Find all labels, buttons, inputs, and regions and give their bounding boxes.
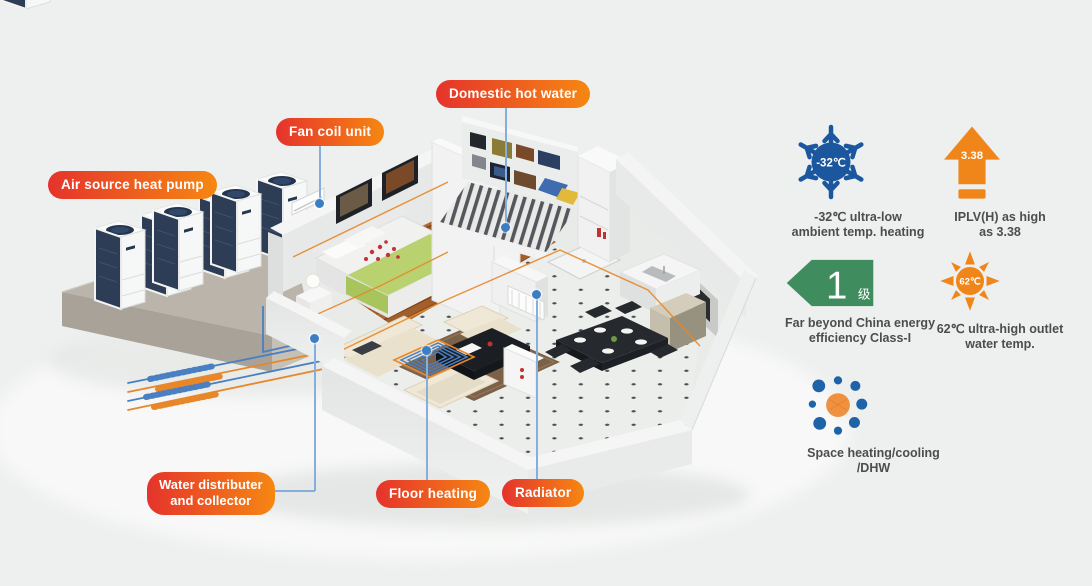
label-water-distributer-line1: Water distributer <box>159 477 263 492</box>
energy-class-number: 1 <box>826 264 847 307</box>
feature-caption: -32℃ ultra-low ambient temp. heating <box>788 210 928 240</box>
heating-cooling-dhw-icon <box>796 374 880 438</box>
leader-dot-fan-coil <box>315 199 324 208</box>
leader-dot-floor-heating <box>422 346 431 355</box>
label-air-source-heat-pump: Air source heat pump <box>48 171 217 199</box>
scene-canvas: Air source heat pump Fan coil unit Domes… <box>0 0 1092 586</box>
leader-dot-dhw <box>501 223 510 232</box>
feature-energy-class: 1 级 Far beyond China energy efficiency C… <box>781 258 939 346</box>
leader-line-fan-coil <box>319 146 321 203</box>
feature-iplv: 3.38 IPLV(H) as high as 3.38 <box>930 124 1070 240</box>
snowflake-badge: -32℃ <box>816 157 846 170</box>
energy-class-unit: 级 <box>858 287 871 301</box>
label-floor-heating: Floor heating <box>376 480 490 508</box>
feature-ultra-low-temp: -32℃ -32℃ ultra-low ambient temp. heatin… <box>788 122 928 240</box>
energy-label-icon: 1 级 <box>781 258 879 308</box>
label-water-distributer: Water distributer and collector <box>147 472 275 515</box>
leader-line-water-h <box>268 490 315 492</box>
sun-badge: 62℃ <box>959 277 980 288</box>
snowflake-icon: -32℃ <box>788 122 874 202</box>
heat-pump-unit <box>0 0 50 9</box>
leader-line-water-v <box>314 338 316 491</box>
leader-line-dhw <box>505 107 507 227</box>
leader-dot-radiator <box>532 290 541 299</box>
heat-pump-units <box>0 0 307 309</box>
feature-caption: Space heating/cooling /DHW <box>796 446 951 476</box>
feature-outlet-temp: 62℃ 62℃ ultra-high outlet water temp. <box>930 248 1070 352</box>
leader-line-floor-heating <box>426 350 428 480</box>
leader-dot-water <box>310 334 319 343</box>
feature-modes: Space heating/cooling /DHW <box>796 374 951 476</box>
label-fan-coil-unit: Fan coil unit <box>276 118 384 146</box>
sun-icon: 62℃ <box>930 248 1010 314</box>
feature-caption: Far beyond China energy efficiency Class… <box>781 316 939 346</box>
label-water-distributer-line2: and collector <box>170 493 251 508</box>
label-domestic-hot-water: Domestic hot water <box>436 80 590 108</box>
leader-line-radiator <box>536 294 538 479</box>
arrow-badge: 3.38 <box>961 150 984 162</box>
feature-caption: IPLV(H) as high as 3.38 <box>930 210 1070 240</box>
label-radiator: Radiator <box>502 479 584 507</box>
feature-caption: 62℃ ultra-high outlet water temp. <box>930 322 1070 352</box>
arrow-up-icon: 3.38 <box>930 124 1014 202</box>
